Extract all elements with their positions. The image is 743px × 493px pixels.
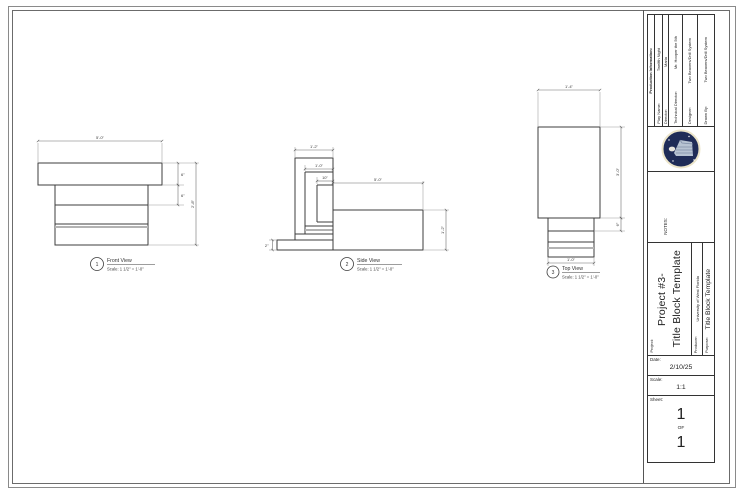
- dimension-label: 2": [265, 243, 269, 248]
- play-name-value: Twelfth Night: [656, 48, 661, 71]
- dimension-label: 6": [615, 222, 620, 226]
- top-body: [538, 127, 600, 218]
- row-technical-director: Mr. Hooper the 5th Technical Director:: [668, 15, 682, 126]
- producer-value: University of West Florida: [695, 276, 700, 322]
- drawn-by-label: Drawn By:: [703, 106, 708, 124]
- row-drawn-by: Two Beavers/Drill System Drawn By:: [697, 15, 714, 126]
- sheet-number-bottom: 1: [677, 434, 686, 452]
- designer-value: Two Beavers/Drill System: [687, 38, 692, 84]
- project-cell: Project: Project #3- Title Block Templat…: [648, 243, 691, 355]
- date-label: Date:: [650, 357, 661, 362]
- director-label: Director:: [663, 109, 668, 124]
- front-body: [55, 185, 148, 245]
- side-view: 1'-2" 1'-0" 10" 5'-0" 1'-2" 2" 2 Side Vi…: [265, 144, 449, 272]
- dimension-label: 6": [181, 172, 185, 177]
- side-base: [277, 240, 333, 250]
- sheet-cell: Sheet: 1 OF 1: [647, 395, 715, 463]
- purpose-cell: Purpose: Title Block Template: [702, 243, 714, 355]
- drawing-views: 5'-0" 6" 6" 2'-8" 1 Front View Scale: 1 …: [0, 0, 643, 493]
- project-title-line2: Title Block Template: [671, 250, 683, 347]
- view-scale: Scale: 1 1/2" = 1'-0": [357, 267, 394, 272]
- side-body: [333, 210, 423, 250]
- dimension-label: 1'-0": [567, 257, 576, 262]
- view-name: Front View: [107, 258, 132, 264]
- play-name-label: Play Name:: [656, 103, 661, 124]
- sheet-of-label: OF: [678, 424, 685, 434]
- dimension-label: 10": [322, 175, 328, 180]
- dimension-label: 1'-2": [310, 144, 319, 149]
- row-play-name: Twelfth Night Play Name:: [654, 15, 662, 126]
- technical-director-value: Mr. Hooper the 5th: [673, 36, 678, 69]
- top-view: 1'-4" 3'-0" 6" 1'-0" 3 Top View Scale: 1…: [538, 84, 625, 280]
- dimension-label: 2'-8": [190, 199, 195, 208]
- view-number: 2: [346, 262, 349, 268]
- view-number: 1: [96, 262, 99, 268]
- scale-value: 1:1: [648, 384, 714, 391]
- producer-label: Producer:: [693, 336, 698, 353]
- top-tail: [548, 218, 594, 257]
- director-value: Maria: [663, 57, 668, 67]
- theatre-production-logo-icon: [661, 129, 701, 169]
- date-value: 2/10/25: [648, 364, 714, 371]
- dimension-label: 1'-4": [565, 84, 574, 89]
- date-cell: Date: 2/10/25: [647, 355, 715, 376]
- project-band: Project: Project #3- Title Block Templat…: [647, 242, 715, 356]
- dimension-label: 5'-0": [374, 177, 383, 182]
- designer-label: Designer:: [687, 107, 692, 124]
- notes-label: NOTES:: [663, 218, 668, 235]
- view-scale: Scale: 1 1/2" = 1'-0": [562, 275, 599, 280]
- scale-cell: Scale: 1:1: [647, 375, 715, 396]
- dimension-label: 5'-0": [96, 135, 105, 140]
- dimension-label: 3'-0": [615, 167, 620, 176]
- dimension-label: 6": [181, 193, 185, 198]
- drawn-by-value: Two Beavers/Drill System: [703, 37, 708, 83]
- project-label: Project:: [649, 339, 654, 353]
- view-scale: Scale: 1 1/2" = 1'-0": [107, 267, 144, 272]
- row-director: Maria Director:: [662, 15, 669, 126]
- notes-cell: NOTES:: [647, 171, 715, 243]
- title-block: Production Information: Twelfth Night Pl…: [643, 10, 730, 483]
- sheet-number-top: 1: [677, 406, 686, 424]
- view-name: Side View: [357, 258, 380, 264]
- technical-director-label: Technical Director:: [673, 91, 678, 124]
- production-information-table: Production Information: Twelfth Night Pl…: [647, 14, 715, 127]
- purpose-value: Title Block Template: [705, 269, 712, 329]
- side-upright: [295, 158, 333, 240]
- view-name: Top View: [562, 266, 583, 272]
- front-top-plate: [38, 163, 162, 185]
- project-title-line1: Project #3-: [656, 273, 668, 326]
- view-number: 3: [552, 270, 555, 276]
- dimension-label: 1'-2": [440, 225, 445, 234]
- dimension-label: 1'-0": [315, 163, 324, 168]
- purpose-label: Purpose:: [704, 337, 709, 353]
- sheet-label: Sheet:: [650, 397, 663, 402]
- row-designer: Two Beavers/Drill System Designer:: [682, 15, 697, 126]
- production-information-header-label: Production Information:: [648, 48, 653, 94]
- logo-cell: [647, 126, 715, 172]
- producer-cell: Producer: University of West Florida: [691, 243, 703, 355]
- front-view: 5'-0" 6" 6" 2'-8" 1 Front View Scale: 1 …: [38, 135, 199, 272]
- scale-label: Scale:: [650, 377, 663, 382]
